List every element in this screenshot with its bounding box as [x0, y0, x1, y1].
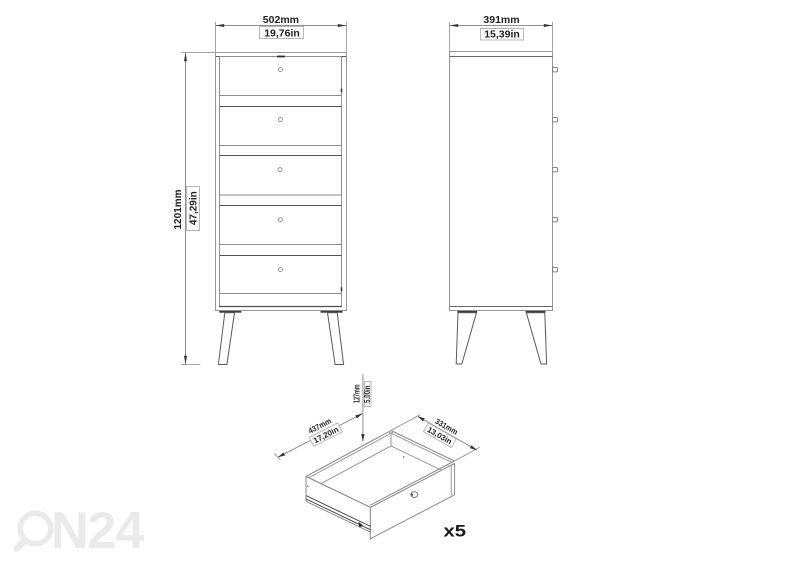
svg-text:391mm: 391mm [483, 14, 519, 26]
svg-text:x5: x5 [444, 522, 467, 541]
svg-text:47,29in: 47,29in [189, 191, 200, 225]
svg-text:19,76in: 19,76in [264, 27, 300, 39]
svg-text:N24: N24 [51, 502, 144, 560]
svg-text:127mm: 127mm [352, 384, 361, 403]
svg-text:1201mm: 1201mm [173, 189, 184, 229]
svg-text:502mm: 502mm [263, 14, 299, 26]
svg-text:15,39in: 15,39in [484, 29, 520, 41]
svg-text:5.00in: 5.00in [363, 385, 372, 403]
